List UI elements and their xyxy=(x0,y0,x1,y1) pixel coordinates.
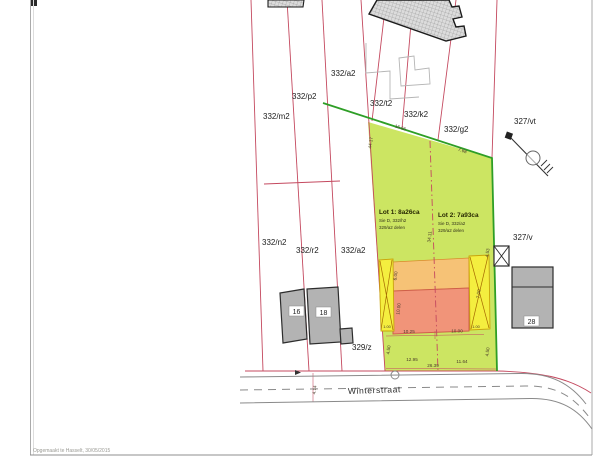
dim-width1: 10.25 xyxy=(403,329,415,334)
dim-width2: 10.00 xyxy=(451,329,463,334)
lot1-section-ref: Sie D, 332/h2 xyxy=(379,218,407,223)
boundary-marker-icon xyxy=(494,246,509,266)
survey-plan-drawing: 16 18 28 xyxy=(0,0,605,461)
parcel-label-329z: 329/z xyxy=(352,343,372,352)
parcel-label-332m2: 332/m2 xyxy=(263,112,290,121)
dim-strip-right: 1.00 xyxy=(472,324,480,329)
dim-front-total: 26.39 xyxy=(427,363,439,368)
dim-setback-left: 4.50 xyxy=(386,345,392,355)
dim-zone-right: 7.00 xyxy=(476,289,482,299)
lot-fill-polygon xyxy=(368,122,497,371)
zone-top-strip xyxy=(393,258,469,291)
dim-front1: 12.95 xyxy=(406,357,418,362)
building-18-annex xyxy=(340,328,353,344)
dim-strip-left: 1.00 xyxy=(383,324,391,329)
parcel-label-332n2: 332/n2 xyxy=(262,238,287,247)
house-number-18: 18 xyxy=(320,310,328,317)
parcel-label-332g2: 332/g2 xyxy=(444,125,469,134)
footer-note: Opgemaakt te Hasselt, 30/05/2015 xyxy=(33,448,110,454)
north-arrow-icon xyxy=(505,132,553,176)
road-winterstraat: Winterstraat xyxy=(240,373,592,429)
parcel-label-332a2-top: 332/a2 xyxy=(331,69,356,78)
lot2-section-ref: Sie D, 332/a2 xyxy=(438,221,466,226)
dim-zone-top: 6.00 xyxy=(393,271,399,281)
scan-frame xyxy=(30,0,592,455)
zone-main-area xyxy=(393,288,469,334)
parcel-label-332t2: 332/t2 xyxy=(370,99,393,108)
building-top-left xyxy=(268,0,304,7)
dim-road-width: 4.14 xyxy=(312,385,318,395)
lot2-title: Lot 2: 7a93ca xyxy=(438,212,479,219)
building-zone xyxy=(379,255,490,334)
house-number-16: 16 xyxy=(293,309,301,316)
lot1-note: 329/a2 delen xyxy=(379,225,406,230)
parcel-label-327vt: 327/vt xyxy=(514,117,537,126)
parcel-label-332k2: 332/k2 xyxy=(404,110,429,119)
lot1-title: Lot 1: 8a26ca xyxy=(379,209,420,216)
parcel-label-327v: 327/v xyxy=(513,233,533,242)
cadastral-plan-page: 16 18 28 xyxy=(0,0,605,461)
parcel-label-332a2-mid: 332/a2 xyxy=(341,246,366,255)
parcel-label-332p2: 332/p2 xyxy=(292,92,317,101)
dim-setback-right: 4.50 xyxy=(485,347,491,357)
hatched-buildings xyxy=(268,0,466,41)
lot2-note: 329/a2 delen xyxy=(438,228,465,233)
street-name-label: Winterstraat xyxy=(348,384,401,396)
lot-area xyxy=(368,122,497,371)
dim-front2: 11.64 xyxy=(456,359,468,364)
house-number-28: 28 xyxy=(528,319,536,326)
parcel-label-332r2: 332/r2 xyxy=(296,246,319,255)
dim-right-upper: 4.53 xyxy=(485,248,491,258)
